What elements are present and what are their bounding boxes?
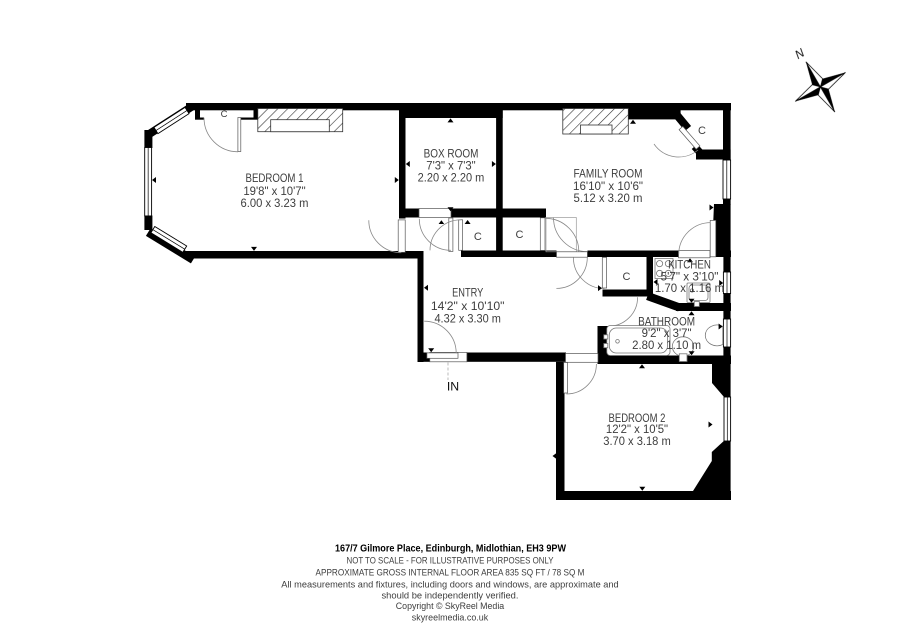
svg-text:2.80 x 1.10 m: 2.80 x 1.10 m xyxy=(632,338,701,352)
svg-text:167/7 Gilmore Place, Edinburgh: 167/7 Gilmore Place, Edinburgh, Midlothi… xyxy=(335,543,567,554)
svg-text:BEDROOM 1: BEDROOM 1 xyxy=(246,171,304,185)
svg-text:1.70 x 1.16 m: 1.70 x 1.16 m xyxy=(655,281,724,295)
svg-text:skyreelmedia.co.uk: skyreelmedia.co.uk xyxy=(412,613,489,624)
svg-text:ENTRY: ENTRY xyxy=(452,285,483,299)
svg-text:IN: IN xyxy=(447,380,459,394)
svg-text:C: C xyxy=(474,231,482,243)
svg-text:5.12 x 3.20 m: 5.12 x 3.20 m xyxy=(574,191,643,205)
svg-text:NOT TO SCALE - FOR ILLUSTRATIV: NOT TO SCALE - FOR ILLUSTRATIVE PURPOSES… xyxy=(347,556,554,567)
svg-text:4.32 x 3.30 m: 4.32 x 3.30 m xyxy=(434,312,501,326)
svg-text:3.70 x 3.18 m: 3.70 x 3.18 m xyxy=(603,434,671,448)
svg-text:C: C xyxy=(221,109,228,120)
svg-text:All measurements and fixtures,: All measurements and fixtures, including… xyxy=(281,579,618,590)
svg-text:C: C xyxy=(698,125,706,137)
svg-text:C: C xyxy=(623,271,631,283)
svg-text:6.00 x 3.23 m: 6.00 x 3.23 m xyxy=(241,196,309,210)
svg-text:Copyright © SkyReel Media: Copyright © SkyReel Media xyxy=(396,601,505,612)
svg-text:C: C xyxy=(516,229,524,241)
svg-text:2.20 x 2.20 m: 2.20 x 2.20 m xyxy=(418,170,485,184)
svg-text:APPROXIMATE GROSS INTERNAL FLO: APPROXIMATE GROSS INTERNAL FLOOR AREA 83… xyxy=(316,568,585,579)
